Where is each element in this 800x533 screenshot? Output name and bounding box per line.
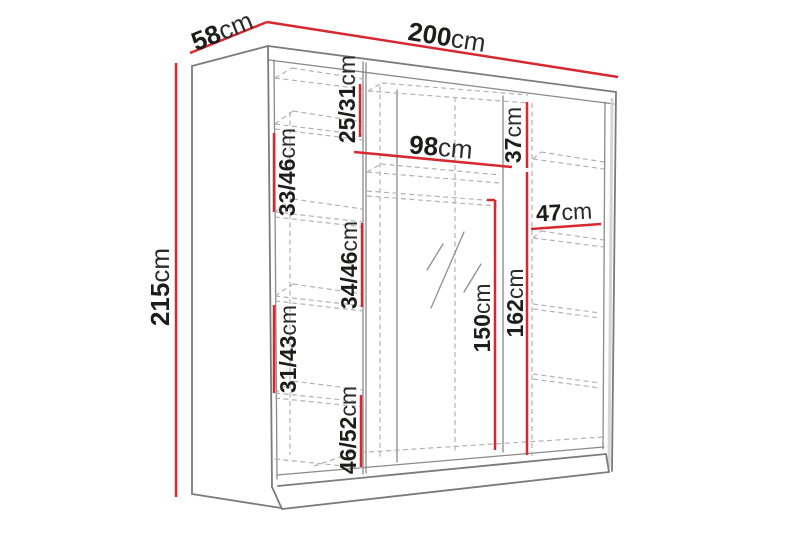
wardrobe-dimension-diagram: 58cm 200cm 215cm 25/31cm 33/46cm 34/46cm… bbox=[0, 0, 800, 533]
dim-label-left-shelf-4: 31/43cm bbox=[275, 305, 301, 393]
dim-label-right-shelf-width: 47cm bbox=[535, 198, 593, 227]
diagram-canvas: 58cm 200cm 215cm 25/31cm 33/46cm 34/46cm… bbox=[0, 0, 800, 533]
interior-hidden-lines bbox=[275, 68, 604, 468]
dim-label-left-shelf-2: 33/46cm bbox=[274, 128, 300, 216]
mirror-streak-1 bbox=[427, 244, 443, 270]
top-inner-edge bbox=[269, 60, 614, 104]
dim-label-right-top-section: 37cm bbox=[500, 107, 526, 163]
plinth-left-cap bbox=[272, 487, 282, 509]
right-shelf-2-dashed bbox=[533, 231, 604, 247]
mirror-streak-2 bbox=[431, 232, 464, 308]
cabinet-outline bbox=[192, 46, 616, 509]
plinth-top-edge bbox=[278, 454, 606, 486]
right-shelf-3-dashed bbox=[533, 304, 600, 318]
dim-label-left-shelf-3: 34/46cm bbox=[336, 221, 362, 309]
right-inner-edge bbox=[603, 102, 605, 449]
dim-label-height: 215cm bbox=[145, 248, 175, 326]
dim-label-hanging-right: 162cm bbox=[502, 268, 528, 337]
dim-label-depth: 58cm bbox=[187, 5, 257, 57]
dim-label-left-shelf-bottom: 46/52cm bbox=[335, 386, 361, 474]
right-shelf-4-dashed bbox=[533, 374, 600, 388]
dim-label-width: 200cm bbox=[406, 16, 488, 58]
interior-floor-dashed bbox=[275, 437, 604, 468]
dim-label-hanging-center: 150cm bbox=[469, 283, 495, 352]
dim-label-middle-door-width: 98cm bbox=[408, 129, 474, 164]
front-left-edge bbox=[268, 46, 272, 487]
dimension-labels: 58cm 200cm 215cm 25/31cm 33/46cm 34/46cm… bbox=[145, 5, 593, 474]
side-bottom-edge bbox=[192, 494, 281, 508]
right-shelf-1-dashed bbox=[533, 152, 604, 169]
plinth-bottom-edge bbox=[282, 472, 609, 509]
dim-label-left-shelf-top: 25/31cm bbox=[334, 55, 360, 143]
left-ceiling-diag bbox=[275, 68, 292, 78]
right-edge-shading bbox=[609, 98, 612, 468]
